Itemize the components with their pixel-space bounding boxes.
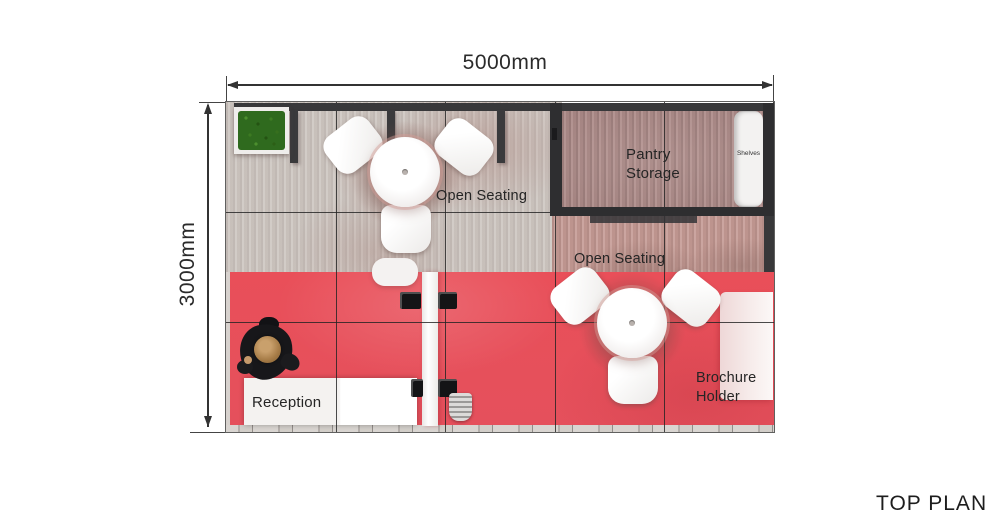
extension-tick [773, 75, 774, 103]
chair [381, 205, 431, 253]
width-dimension-line [228, 84, 772, 86]
pantry-storage-line1: Pantry [626, 145, 680, 164]
extension-tick [199, 102, 227, 103]
pantry-wall-right [763, 103, 774, 216]
bottom-wood-strip [226, 425, 774, 432]
wall-fin [497, 110, 505, 163]
floor-plan-canvas: 5000mm 3000mm [0, 0, 1000, 527]
side-wall-segment [764, 216, 774, 272]
pantry-wall-left [550, 103, 562, 216]
person [237, 316, 299, 386]
brochure-holder-line2: Holder [696, 388, 756, 407]
shelves-unit: Shelves [734, 111, 763, 207]
shelves-label: Shelves [734, 150, 763, 157]
chair [608, 356, 658, 404]
seating-group-2 [552, 243, 712, 413]
pantry-storage-line2: Storage [626, 164, 680, 183]
arrowhead-right-icon [762, 81, 773, 89]
brochure-holder-line1: Brochure [696, 369, 756, 388]
step-stool [449, 393, 472, 421]
plant-icon [238, 111, 285, 150]
reception-label: Reception [252, 394, 321, 411]
seating-group-1 [325, 102, 485, 262]
page-title: TOP PLAN [876, 492, 987, 516]
plant-box [234, 107, 289, 154]
width-dimension-label: 5000mm [450, 51, 560, 75]
table-centerpiece [402, 169, 408, 175]
wall-fin [290, 110, 298, 163]
person-hand [244, 356, 252, 364]
arrowhead-down-icon [204, 416, 212, 427]
extension-tick [226, 76, 227, 103]
height-dimension-line [207, 105, 209, 427]
partition-wall [422, 272, 438, 426]
display-screen [400, 292, 421, 309]
extension-tick [190, 432, 229, 433]
arrowhead-left-icon [227, 81, 238, 89]
pantry-wall-bottom [550, 207, 774, 216]
open-seating-label-top: Open Seating [436, 188, 527, 204]
floor-plan: Shelves [226, 102, 774, 432]
pantry-storage-label: Pantry Storage [626, 145, 680, 183]
pantry-door-hinge [552, 128, 557, 140]
height-dimension-label: 3000mm [176, 222, 200, 307]
pantry-threshold-shadow [590, 216, 697, 223]
arrowhead-up-icon [204, 103, 212, 114]
display-screen [438, 292, 457, 309]
partition-end-table [372, 258, 418, 286]
brochure-holder-label: Brochure Holder [696, 369, 756, 407]
display-screen [411, 379, 423, 397]
person-head [254, 336, 281, 363]
table-centerpiece [629, 320, 635, 326]
open-seating-label-bottom: Open Seating [574, 251, 665, 267]
